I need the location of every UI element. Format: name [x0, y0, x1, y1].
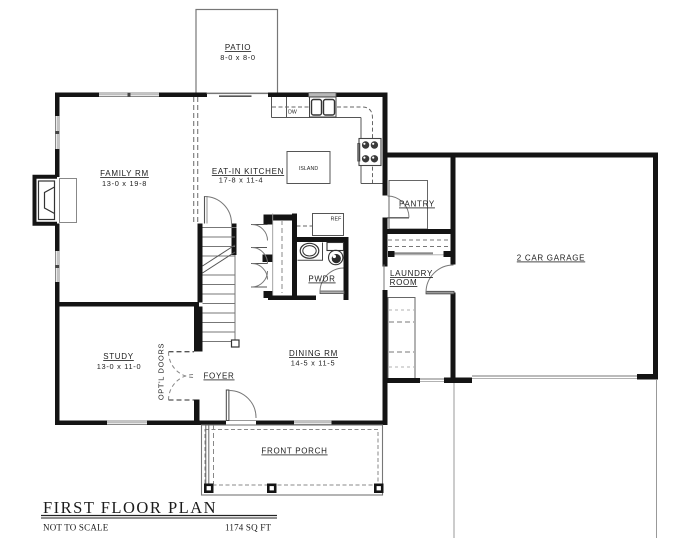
svg-text:NOT TO SCALE: NOT TO SCALE	[43, 523, 109, 533]
svg-text:2 CAR GARAGE: 2 CAR GARAGE	[517, 254, 585, 263]
svg-text:PANTRY: PANTRY	[399, 200, 435, 209]
svg-text:ROOM: ROOM	[390, 278, 418, 287]
svg-text:FRONT PORCH: FRONT PORCH	[261, 447, 327, 456]
svg-text:1174 SQ FT: 1174 SQ FT	[225, 523, 271, 533]
svg-text:DINING RM: DINING RM	[289, 349, 338, 358]
svg-text:14-5 x 11-5: 14-5 x 11-5	[291, 359, 336, 368]
svg-text:17-8 x 11-4: 17-8 x 11-4	[219, 176, 264, 185]
svg-text:PWDR: PWDR	[308, 275, 335, 284]
svg-text:PATIO: PATIO	[225, 43, 251, 52]
svg-text:LAUNDRY: LAUNDRY	[390, 269, 433, 278]
svg-text:FAMILY RM: FAMILY RM	[100, 169, 149, 178]
svg-text:FOYER: FOYER	[203, 372, 234, 381]
svg-text:STUDY: STUDY	[103, 352, 134, 361]
svg-text:FIRST FLOOR PLAN: FIRST FLOOR PLAN	[43, 498, 217, 517]
svg-text:REF: REF	[331, 217, 342, 223]
svg-text:OPT'L DOORS: OPT'L DOORS	[157, 343, 166, 400]
svg-text:DW: DW	[288, 110, 297, 116]
svg-text:13-0 x 19-8: 13-0 x 19-8	[102, 179, 147, 188]
svg-text:ISLAND: ISLAND	[299, 166, 318, 172]
svg-text:8-0 x 8-0: 8-0 x 8-0	[220, 53, 255, 62]
svg-text:13-0 x 11-0: 13-0 x 11-0	[97, 362, 142, 371]
